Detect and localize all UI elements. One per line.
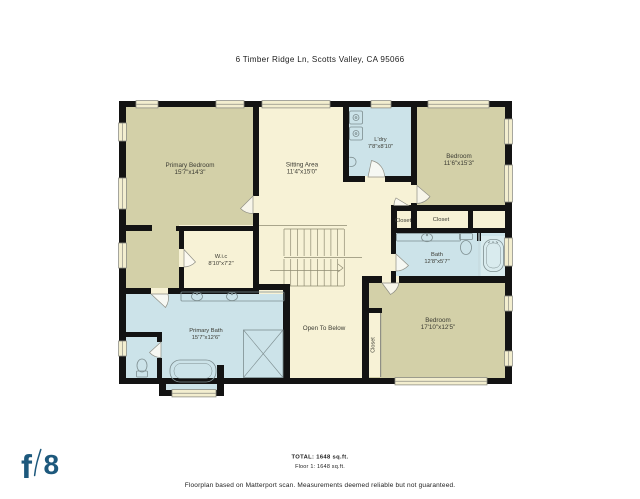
- svg-text:Closet: Closet: [433, 217, 450, 223]
- svg-text:f: f: [21, 448, 33, 485]
- svg-text:Floorplan based on Matterport: Floorplan based on Matterport scan. Meas…: [185, 482, 456, 489]
- svg-text:8'10"x7'2": 8'10"x7'2": [208, 261, 233, 267]
- svg-text:11'4"x15'0": 11'4"x15'0": [287, 169, 318, 176]
- svg-text:W.i.c: W.i.c: [215, 254, 228, 260]
- svg-text:Bedroom: Bedroom: [446, 153, 472, 160]
- svg-text:Closet: Closet: [371, 337, 377, 353]
- svg-text:7'8"x8'10": 7'8"x8'10": [368, 144, 393, 150]
- svg-text:Open To Below: Open To Below: [303, 325, 346, 332]
- svg-text:Sitting Area: Sitting Area: [286, 162, 319, 169]
- svg-text:Primary Bedroom: Primary Bedroom: [166, 162, 215, 169]
- svg-text:L'dry: L'dry: [374, 137, 386, 143]
- svg-text:15'7"x12'6": 15'7"x12'6": [192, 335, 221, 341]
- svg-text:8: 8: [44, 449, 60, 480]
- svg-text:12'8"x5'7": 12'8"x5'7": [424, 259, 449, 265]
- svg-text:Closet: Closet: [395, 218, 412, 224]
- svg-text:TOTAL: 1648 sq.ft.: TOTAL: 1648 sq.ft.: [292, 455, 349, 461]
- svg-text:11'6"x15'3": 11'6"x15'3": [444, 160, 475, 167]
- svg-text:Primary Bath: Primary Bath: [189, 328, 223, 334]
- svg-text:15'7"x14'3": 15'7"x14'3": [174, 169, 205, 176]
- svg-text:Floor 1: 1648 sq.ft.: Floor 1: 1648 sq.ft.: [295, 464, 345, 470]
- svg-text:6 Timber Ridge Ln, Scotts Vall: 6 Timber Ridge Ln, Scotts Valley, CA 950…: [236, 55, 405, 64]
- svg-text:17'10"x12'5": 17'10"x12'5": [421, 324, 456, 331]
- svg-text:Bath: Bath: [431, 252, 443, 258]
- svg-text:Bedroom: Bedroom: [425, 317, 451, 324]
